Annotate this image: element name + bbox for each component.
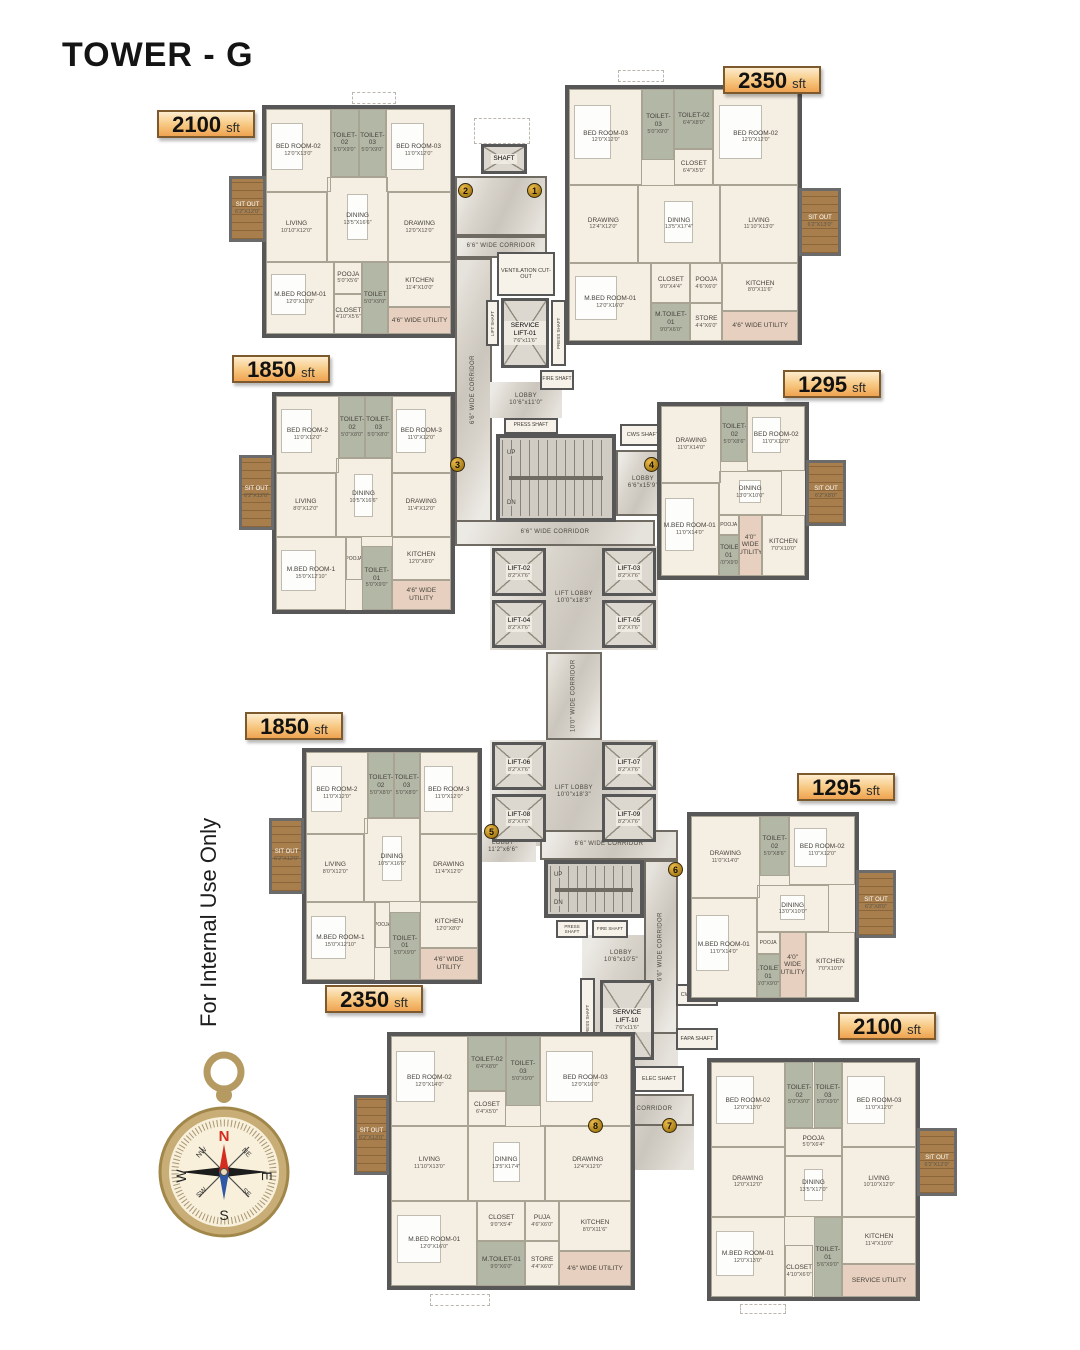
room-bedroom-03: BED ROOM-0312'0"X12'0" (569, 89, 642, 185)
room-dining: DINING13'5"X17'4" (468, 1126, 545, 1201)
area-label-2350-bottom-left: 2350sft (325, 985, 423, 1013)
compass-w: W (173, 1169, 189, 1183)
room-dining: DINING13'5"X17'0" (785, 1156, 842, 1217)
press-shaft: PRESS SHAFT (551, 300, 566, 366)
stair-landing (509, 476, 603, 480)
sitout-balcony: SIT OUT6'2"X12'0" (917, 1128, 957, 1196)
sitout-balcony: SIT OUT6'2"X8'0" (806, 460, 846, 526)
fire-shaft: FIRE SHAFT (540, 370, 574, 390)
room-drawing: DRAWING11'4"X12'0" (420, 834, 478, 902)
room-pooja: POOJA (375, 902, 390, 948)
room-toilet-02: TOILET-025'0"X8'0" (368, 752, 394, 818)
lift-02: LIFT-028'2"X7'6" (492, 548, 546, 596)
room-master-bedroom: M.BED ROOM-115'0"X12'10" (276, 537, 346, 610)
room-kitchen: KITCHEN12'0"X8'0" (420, 902, 478, 948)
lobby-bottom: LOBBY10'6"x10'5" (584, 940, 658, 974)
room-toilet-01: TOILET-015'6"X9'0" (814, 1217, 843, 1297)
corridor-vertical-mid: 10'0" WIDE CORRIDOR (546, 652, 602, 740)
room-bedroom-02: BED ROOM-0212'0"X13'0" (711, 1062, 785, 1147)
room-drawing: DRAWING12'4"X12'0" (545, 1126, 631, 1201)
fire-shaft: FIRE SHAFT (592, 920, 628, 938)
room-bedroom-2: BED ROOM-211'0"X12'0" (276, 396, 339, 473)
room-pooja: POOJA (719, 515, 739, 535)
room-toilet-03: TOILET-035'0"X8'0" (394, 752, 420, 818)
room-master-bedroom: M.BED ROOM-115'0"X12'10" (306, 902, 375, 980)
room-bedroom-2: BED ROOM-211'0"X12'0" (306, 752, 368, 834)
lift-06: LIFT-068'2"X7'6" (492, 742, 546, 790)
lift-lobby-lower-label: LIFT LOBBY10'0"x18'3" (546, 750, 602, 834)
service-lift-01: SERVICE LIFT-017'6"x11'6" (501, 298, 549, 368)
room-master-toilet: M.TOILET-019'0"X6'0" (651, 303, 690, 341)
lift-lobby-upper-label: LIFT LOBBY10'0"x18'3" (546, 556, 602, 640)
room-closet: CLOSET9'0"X4'4" (651, 263, 690, 303)
unit-2350-bottom-left: BED ROOM-0212'0"X14'0" TOILET-026'4"X8'0… (387, 1032, 635, 1290)
room-kitchen: KITCHEN12'0"X8'0" (392, 537, 452, 580)
room-drawing: DRAWING11'4"X12'0" (392, 473, 452, 537)
room-utility: SERVICE UTILITY (842, 1264, 916, 1297)
fapa-shaft: FAPA SHAFT (676, 1028, 718, 1050)
room-bedroom-03: BED ROOM-0311'0"X12'0" (842, 1062, 916, 1147)
compass-knob (216, 1087, 232, 1103)
room-bedroom-02: BED ROOM-0211'0"X12'0" (747, 406, 805, 471)
room-master-bedroom: M.BED ROOM-0112'0"X13'0" (266, 262, 334, 334)
unit-2350-top-right: BED ROOM-0312'0"X12'0" TOILET-035'0"X9'0… (565, 85, 802, 345)
room-drawing: DRAWING11'0"X14'0" (661, 406, 721, 483)
unit-badge-2: 2 (458, 183, 473, 198)
room-puja: PUJA4'6"X6'0" (525, 1201, 559, 1241)
area-label-2100-top-left: 2100sft (157, 110, 255, 138)
staircase-lower: UPDN (544, 860, 644, 918)
room-master-bedroom: M.BED ROOM-0112'0"X13'0" (711, 1217, 785, 1297)
room-utility: 4'6" WIDE UTILITY (392, 580, 452, 610)
room-kitchen: KITCHEN8'0"X11'6" (722, 263, 798, 311)
room-dining: DINING10'5"X16'6" (336, 458, 392, 537)
corridor-band-mid: 6'6" WIDE CORRIDOR (455, 520, 655, 546)
room-closet: CLOSET6'4"X5'0" (468, 1091, 506, 1126)
elec-shaft: ELEC SHAFT (634, 1066, 684, 1092)
room-drawing: DRAWING11'0"X14'0" (691, 816, 760, 898)
page-title: TOWER - G (62, 36, 254, 75)
compass-n: N (219, 1128, 230, 1145)
room-utility: 4'6" WIDE UTILITY (722, 311, 798, 341)
room-living: LIVING8'0"X12'0" (276, 473, 336, 537)
compass-ring (207, 1055, 241, 1089)
room-bedroom-02: BED ROOM-0212'0"X13'0" (266, 109, 331, 192)
room-drawing: DRAWING12'0"X12'0" (388, 192, 451, 262)
sitout-balcony: SIT OUT6'2"X12'0" (269, 818, 304, 894)
room-utility: 4'0" WIDE UTILITY (739, 515, 762, 576)
room-utility: 4'6" WIDE UTILITY (420, 948, 478, 980)
room-bedroom-02: BED ROOM-0212'0"X12'0" (713, 89, 798, 185)
projection-line (430, 1294, 490, 1306)
room-pooja: POOJA (757, 932, 780, 954)
projection-line (352, 92, 396, 104)
room-closet: CLOSET9'0"X5'4" (477, 1201, 525, 1241)
room-toilet-03: TOILET-035'0"X9'0" (642, 89, 674, 160)
room-closet: CLOSET4'10"X5'6" (334, 294, 362, 335)
floor-plan-sheet: TOWER - G For Internal Use Only SHAFT 6'… (0, 0, 1080, 1350)
compass-pivot (221, 1169, 228, 1176)
lift-03: LIFT-038'2"X7'6" (602, 548, 656, 596)
room-closet: CLOSET6'4"X5'0" (674, 149, 713, 184)
room-pooja: POOJA5'0"X5'6" (334, 262, 362, 294)
room-drawing: DRAWING12'0"X12'0" (711, 1147, 785, 1218)
staircase-upper: UPDN (496, 434, 616, 522)
room-utility: 4'6" WIDE UTILITY (559, 1251, 631, 1286)
room-kitchen: KITCHEN7'0"X10'0" (762, 515, 805, 576)
top-shaft: SHAFT (481, 144, 527, 174)
room-pooja: POOJA (346, 537, 362, 580)
area-label-2350-top-right: 2350sft (723, 66, 821, 94)
room-bedroom-03: BED ROOM-0312'0"X16'0" (540, 1036, 631, 1126)
unit-1295-low-right: DRAWING11'0"X14'0" TOILET-025'0"X8'6" BE… (687, 812, 859, 1002)
room-name: BED ROOM-02 (276, 143, 321, 151)
ventilation-cutout: VENTILATION CUT-OUT (497, 252, 555, 296)
room-toilet-01: TOILET-015'0"X9'0" (362, 546, 392, 610)
room-bedroom-02: BED ROOM-0211'0"X12'0" (789, 816, 855, 885)
room-toilet-03: TOILET-035'0"X8'0" (365, 396, 391, 458)
room-living: LIVING10'10"X12'0" (266, 192, 327, 262)
unit-badge-1: 1 (527, 183, 542, 198)
watermark-text: For Internal Use Only (196, 812, 222, 1027)
room-toilet-03: TOILET-035'0"X9'0" (814, 1062, 843, 1128)
room-bedroom-02: BED ROOM-0212'0"X14'0" (391, 1036, 468, 1126)
room-kitchen: KITCHEN11'4"X10'0" (842, 1217, 916, 1264)
unit-badge-3: 3 (450, 457, 465, 472)
room-closet: CLOSET4'10"X6'0" (785, 1245, 814, 1297)
area-label-1850-mid-left: 1850sft (232, 355, 330, 383)
room-dining: DINING13'5"X16'6" (327, 177, 388, 263)
room-master-toilet: M.TOILET-015'0"X9'0" (719, 535, 739, 576)
room-master-bedroom: M.BED ROOM-0111'0"X14'0" (661, 483, 719, 577)
unit-badge-7: 7 (662, 1118, 677, 1133)
room-master-bedroom: M.BED ROOM-0112'0"X16'0" (569, 263, 651, 341)
lift-04: LIFT-048'2"X7'6" (492, 600, 546, 648)
lift-09: LIFT-098'2"X7'6" (602, 794, 656, 842)
shaft-label: SHAFT (493, 155, 514, 163)
room-kitchen: KITCHEN11'4"X10'0" (388, 262, 451, 307)
compass-s: S (219, 1207, 228, 1223)
room-drawing: DRAWING12'4"X12'0" (569, 185, 638, 263)
room-living: LIVING11'10"X13'0" (720, 185, 798, 263)
projection-line (618, 70, 664, 82)
room-store: STORE4'4"X6'0" (690, 303, 722, 341)
room-living: LIVING8'0"X12'0" (306, 834, 364, 902)
room-master-toilet: M.TOILET-015'0"X9'0" (757, 954, 780, 998)
room-toilet-02: TOILET-025'0"X8'6" (721, 406, 747, 462)
unit-1295-mid-right: DRAWING11'0"X14'0" TOILET-025'0"X8'6" BE… (657, 402, 809, 580)
room-dining: DINING13'0"X10'0" (757, 885, 829, 932)
room-master-bedroom: M.BED ROOM-0112'0"X16'0" (391, 1201, 477, 1286)
room-toilet-02: TOILET-025'0"X9'0" (785, 1062, 814, 1128)
unit-badge-5: 5 (484, 824, 499, 839)
room-kitchen: KITCHEN7'0"X10'0" (806, 932, 855, 998)
room-bedroom-3: BED ROOM-311'0"X12'0" (420, 752, 478, 834)
area-label-1295-low-right: 1295sft (797, 773, 895, 801)
press-shaft: PRESS SHAFT (504, 418, 558, 434)
room-master-bedroom: M.BED ROOM-0111'0"X14'0" (691, 898, 757, 998)
room-toilet-02: TOILET-025'0"X8'6" (760, 816, 790, 876)
area-label-1850-low-left: 1850sft (245, 712, 343, 740)
room-utility: 4'6" WIDE UTILITY (388, 307, 451, 334)
room-living: LIVING10'10"X12'0" (842, 1147, 916, 1218)
room-kitchen: KITCHEN8'0"X11'6" (559, 1201, 631, 1251)
unit-badge-8: 8 (588, 1118, 603, 1133)
room-bedroom-3: BED ROOM-311'0"X12'0" (392, 396, 452, 473)
room-toilet-01: TOILET-015'0"X9'0" (390, 912, 419, 980)
stair-landing (555, 888, 632, 892)
room-dining: DINING13'0"X10'0" (719, 471, 782, 515)
room-pooja: POOJA5'0"X6'4" (785, 1128, 842, 1156)
area-label-2100-bottom-right: 2100sft (838, 1012, 936, 1040)
room-toilet-03: TOILET-035'0"X9'0" (506, 1036, 540, 1106)
room-store: STORE4'4"X6'0" (525, 1241, 559, 1286)
corridor-vertical-left: 6'6" WIDE CORRIDOR (455, 258, 492, 522)
projection-line (474, 118, 530, 144)
projection-line (740, 1304, 786, 1314)
room-utility: 4'0" WIDE UTILITY (780, 932, 806, 998)
sitout-balcony: SIT OUT6'2"X8'0" (856, 870, 896, 938)
room-toilet-02: TOILET-025'0"X8'0" (339, 396, 365, 458)
lift-08: LIFT-088'2"X7'6" (492, 794, 546, 842)
area-label-1295-mid-right: 1295sft (783, 370, 881, 398)
press-shaft: PRESS SHAFT (556, 920, 588, 938)
room-toilet-02: TOILET-025'0"X9'0" (331, 109, 359, 177)
unit-badge-6: 6 (668, 862, 683, 877)
unit-1850-mid-left: BED ROOM-211'0"X12'0" TOILET-025'0"X8'0"… (272, 392, 455, 614)
lift-05: LIFT-058'2"X7'6" (602, 600, 656, 648)
room-living: LIVING11'10"X13'0" (391, 1126, 468, 1201)
unit-2100-bottom-right: BED ROOM-0212'0"X13'0" TOILET-025'0"X9'0… (707, 1058, 920, 1301)
room-toilet-02: TOILET-026'4"X8'0" (674, 89, 713, 149)
sitout-balcony: SIT OUT6'2"X13'0" (354, 1095, 389, 1175)
lift-07: LIFT-078'2"X7'6" (602, 742, 656, 790)
room-toilet-02: TOILET-026'4"X8'0" (468, 1036, 506, 1091)
room-pooja: POOJA4'6"X6'0" (690, 263, 722, 303)
compass-e: E (259, 1171, 275, 1180)
sitout-balcony: SIT OUT6'2"X12'0" (239, 455, 274, 530)
room-master-toilet: M.TOILET-019'0"X6'0" (477, 1241, 525, 1286)
lift-shaft: LIFT SHAFT (486, 300, 499, 346)
unit-1850-low-left: BED ROOM-211'0"X12'0" TOILET-025'0"X8'0"… (302, 748, 482, 984)
unit-badge-4: 4 (644, 457, 659, 472)
room-toilet: TOILET5'0"X9'0" (362, 262, 388, 334)
sitout-balcony: SIT OUT6'2"X12'0" (229, 176, 266, 242)
room-bedroom-03: BED ROOM-0311'0"X12'0" (386, 109, 451, 192)
room-dining: DINING10'5"X16'6" (364, 818, 419, 902)
sitout-balcony: SIT OUT6'2"X13'0" (799, 188, 841, 256)
room-toilet-03: TOILET-035'0"X9'0" (359, 109, 387, 177)
compass-rose: N S W E NW NE SW SE (150, 1042, 298, 1248)
room-dims: 12'0"X13'0" (284, 151, 312, 158)
room-dining: DINING13'5"X17'4" (638, 185, 720, 263)
unit-2100-top-left: BED ROOM-0212'0"X13'0" TOILET-025'0"X9'0… (262, 105, 455, 338)
